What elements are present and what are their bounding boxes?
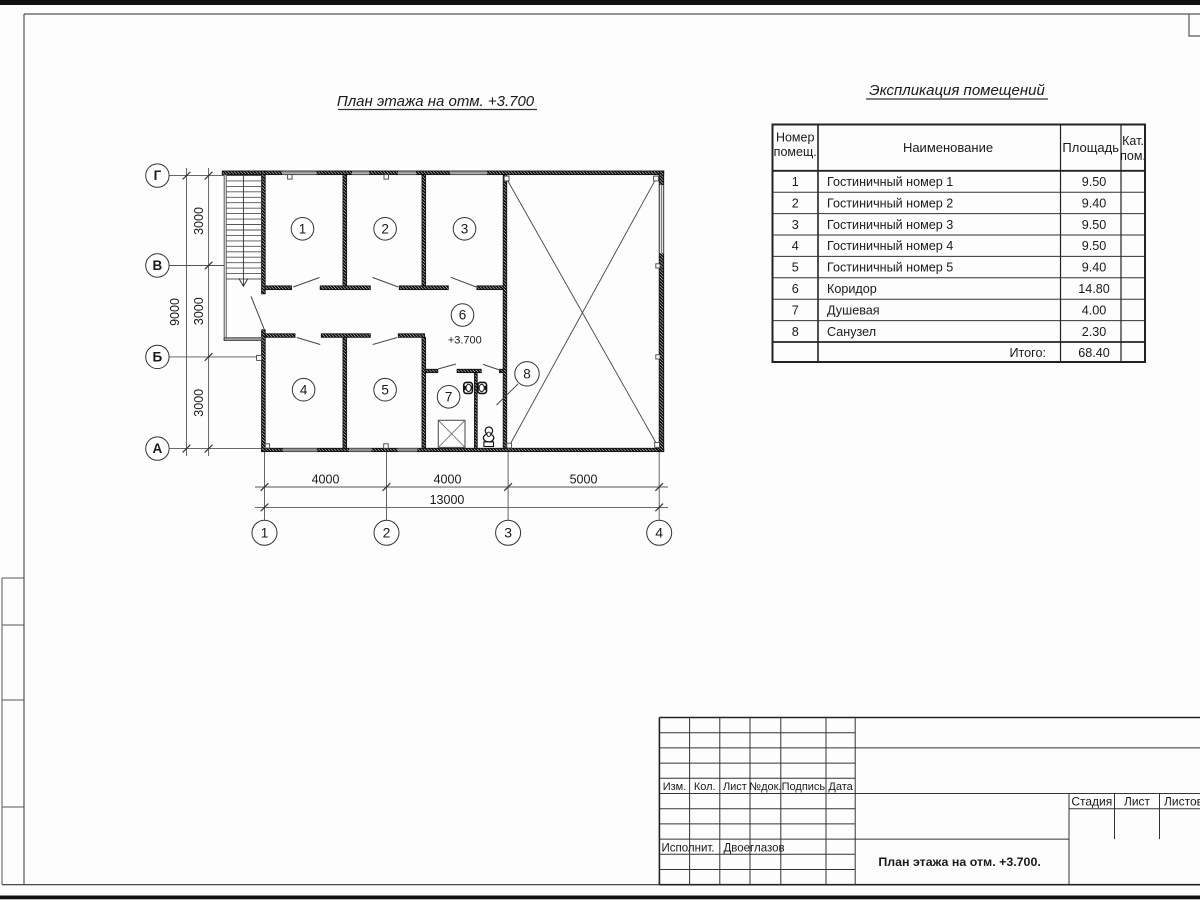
- svg-text:Листов: Листов: [1164, 795, 1200, 809]
- svg-text:Санузел: Санузел: [827, 325, 876, 339]
- svg-text:9.50: 9.50: [1082, 218, 1107, 232]
- svg-text:5: 5: [792, 261, 799, 275]
- svg-text:4: 4: [300, 382, 308, 397]
- svg-text:9000: 9000: [168, 298, 182, 326]
- svg-text:Номер: Номер: [776, 131, 815, 145]
- svg-text:1: 1: [261, 525, 269, 541]
- svg-text:В: В: [153, 258, 163, 273]
- svg-text:Двоеглазов: Двоеглазов: [724, 843, 785, 855]
- svg-text:Г: Г: [154, 168, 162, 183]
- svg-text:Гостиничный номер 3: Гостиничный номер 3: [827, 218, 953, 232]
- svg-text:2: 2: [792, 196, 799, 210]
- svg-text:4.00: 4.00: [1082, 303, 1107, 317]
- svg-text:Коридор: Коридор: [827, 282, 877, 296]
- svg-text:2: 2: [381, 222, 389, 237]
- svg-text:4000: 4000: [434, 473, 462, 487]
- svg-text:Гостиничный номер 4: Гостиничный номер 4: [827, 239, 953, 253]
- svg-text:1: 1: [299, 222, 307, 237]
- svg-text:Кол.: Кол.: [694, 781, 716, 793]
- svg-text:13000: 13000: [430, 493, 465, 507]
- svg-text:3000: 3000: [192, 297, 206, 325]
- svg-text:+3.700: +3.700: [448, 335, 482, 347]
- svg-text:Наименование: Наименование: [903, 140, 993, 155]
- svg-text:5000: 5000: [570, 473, 598, 487]
- svg-text:8: 8: [792, 325, 799, 339]
- svg-text:План этажа на отм. +3.700.: План этажа на отм. +3.700.: [878, 855, 1040, 869]
- svg-text:9.40: 9.40: [1082, 196, 1107, 210]
- svg-text:3: 3: [504, 525, 512, 541]
- svg-text:Гостиничный номер 5: Гостиничный номер 5: [827, 261, 953, 275]
- svg-text:8: 8: [523, 367, 531, 382]
- svg-text:помещ.: помещ.: [774, 145, 817, 159]
- svg-text:Итого:: Итого:: [1009, 346, 1046, 360]
- svg-text:4: 4: [792, 239, 799, 253]
- svg-text:7: 7: [792, 303, 799, 317]
- svg-text:пом.: пом.: [1120, 149, 1146, 163]
- svg-text:Стадия: Стадия: [1071, 795, 1112, 809]
- svg-text:Дата: Дата: [828, 781, 853, 793]
- svg-text:Исполнит.: Исполнит.: [662, 843, 715, 855]
- svg-text:4000: 4000: [312, 473, 340, 487]
- svg-text:3000: 3000: [192, 207, 206, 235]
- svg-text:3000: 3000: [192, 389, 206, 417]
- svg-text:4: 4: [655, 525, 663, 541]
- svg-text:Кат.: Кат.: [1122, 134, 1144, 148]
- svg-text:Гостиничный номер 2: Гостиничный номер 2: [827, 196, 953, 210]
- svg-text:Подпись: Подпись: [782, 781, 826, 793]
- svg-text:6: 6: [459, 308, 467, 323]
- svg-text:Площадь: Площадь: [1062, 140, 1119, 155]
- svg-text:7: 7: [445, 390, 453, 405]
- svg-text:3: 3: [792, 218, 799, 232]
- svg-text:Лист: Лист: [723, 781, 747, 793]
- svg-text:Гостиничный номер 1: Гостиничный номер 1: [827, 175, 953, 189]
- svg-text:6: 6: [792, 282, 799, 296]
- svg-text:9.50: 9.50: [1082, 175, 1107, 189]
- svg-text:Экспликация помещений: Экспликация помещений: [869, 82, 1045, 99]
- svg-text:План этажа на отм. +3.700: План этажа на отм. +3.700: [337, 93, 535, 110]
- svg-text:1: 1: [792, 175, 799, 189]
- svg-text:68.40: 68.40: [1078, 346, 1110, 360]
- svg-text:Лист: Лист: [1124, 795, 1151, 809]
- svg-text:№док.: №док.: [749, 781, 781, 793]
- svg-text:2.30: 2.30: [1082, 325, 1107, 339]
- svg-text:Изм.: Изм.: [663, 781, 687, 793]
- svg-text:А: А: [153, 441, 163, 456]
- svg-text:Душевая: Душевая: [827, 303, 880, 317]
- svg-text:5: 5: [381, 382, 389, 397]
- svg-text:9.50: 9.50: [1082, 239, 1107, 253]
- svg-text:14.80: 14.80: [1078, 282, 1110, 296]
- svg-text:Б: Б: [153, 350, 163, 365]
- svg-text:2: 2: [383, 525, 391, 541]
- svg-text:9.40: 9.40: [1082, 261, 1107, 275]
- svg-text:3: 3: [461, 222, 469, 237]
